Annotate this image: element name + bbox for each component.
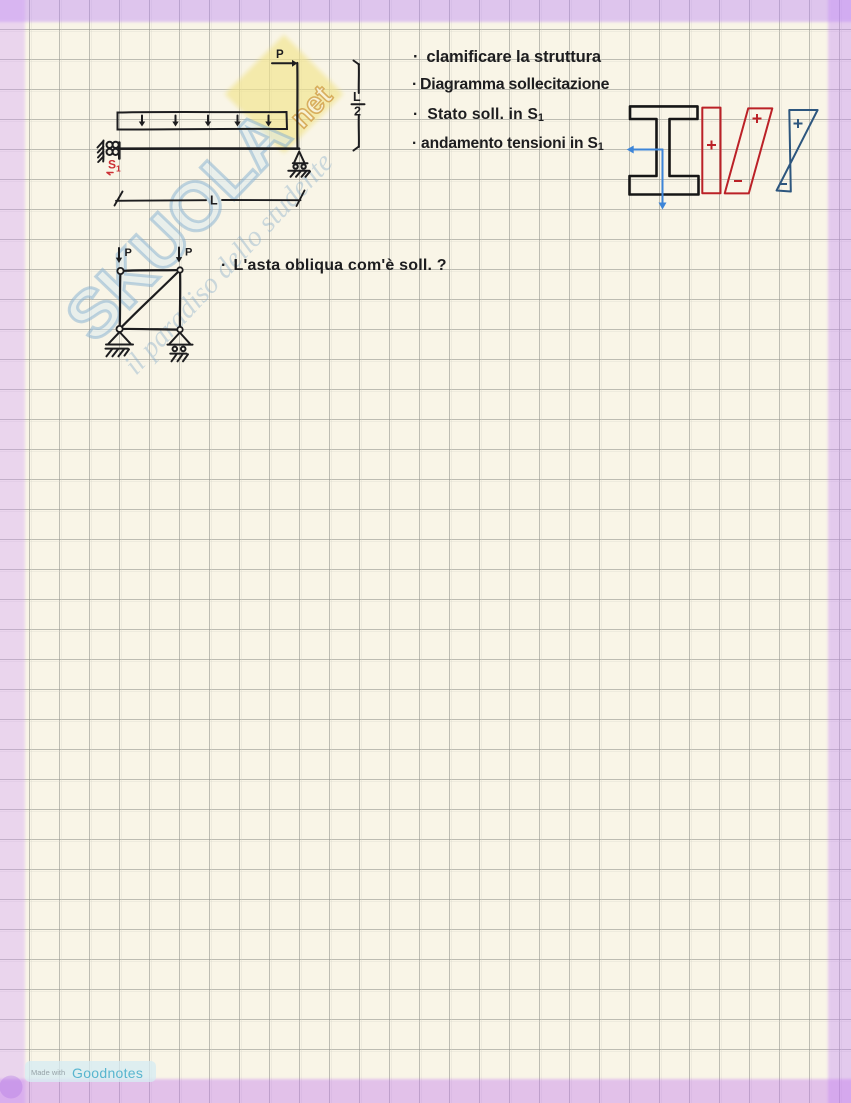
svg-text:2: 2 <box>354 105 361 119</box>
svg-text:P: P <box>125 247 132 259</box>
svg-text:L: L <box>353 90 361 104</box>
svg-text:P: P <box>185 247 192 259</box>
svg-text:L: L <box>210 194 218 208</box>
svg-text:1: 1 <box>116 164 121 174</box>
svg-text:P: P <box>276 49 284 61</box>
svg-text:S: S <box>108 158 116 172</box>
